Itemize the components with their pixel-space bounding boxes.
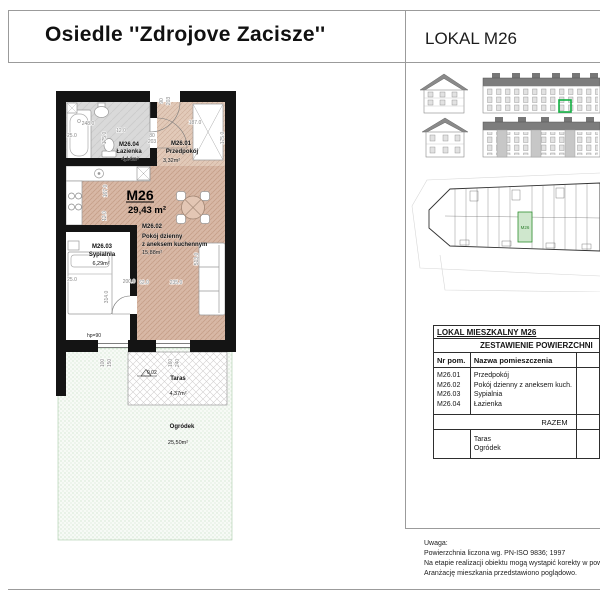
hall-area: 3,32m² [163,158,180,164]
bath-area: 4,14m² [121,157,138,163]
floor-plan-drawing: M26.04 Łazienka 4,14m² M26.01 Przedpokój… [40,85,250,545]
bed-area: 6,29m² [92,261,109,267]
notes-block: Uwaga: Powierzchnia liczona wg. PN-ISO 9… [424,539,600,579]
dim-window-w: 100 [100,359,106,368]
elevation-side-1 [420,74,468,113]
elevation-rear [483,117,600,157]
room-nr-2: M26.02 [437,381,467,391]
room-name-4: Łazienka [474,400,573,410]
living-id: M26.02 [142,224,163,230]
dim-hall-1: 187.0 [189,120,202,126]
area-table: LOKAL MIESZKALNY M26 ZESTAWIENIE POWIERZ… [433,325,600,459]
dim-kitchen-1: 167.0 [103,185,109,198]
extra-name-1: Taras [474,435,573,445]
building-elevations [408,64,600,160]
room-name-3: Sypialnia [474,390,573,400]
dim-bath-3: 175.0 [102,132,108,145]
hall-name: Przedpokój [166,149,199,155]
bed-id: M26.03 [92,244,113,250]
dim-hall-2: 175.0 [220,132,226,145]
room-numbers: M26.01 M26.02 M26.03 M26.04 [434,368,471,415]
col-header-nr: Nr pom. [434,353,471,368]
dim-bed-3: 25.0 [67,277,77,283]
terrace-area-label: 4,37m² [169,391,186,397]
room-nr-1: M26.01 [437,371,467,381]
dim-window-h: 150 [107,359,113,368]
dim-bath-2: 248.0 [82,121,95,127]
garden-name: Ogródek [170,424,195,430]
hall-id: M26.01 [171,141,192,147]
living-area: 15,88m² [142,250,162,256]
estate-title: Osiedle ''Zdrojove Zacisze'' [45,23,325,47]
room-name-1: Przedpokój [474,371,573,381]
building-footprint: M26 [429,183,600,251]
extra-nr-cell [434,430,471,459]
unit-total-area: 29,43 m² [128,205,166,216]
extra-areas [576,430,599,459]
notes-line-2: Powierzchnia liczona wg. PN-ISO 9836; 19… [424,549,600,559]
elevation-side-2 [422,118,468,157]
extra-name-2: Ogródek [474,444,573,454]
header-top-line [8,10,600,11]
col-header-name: Nazwa pomieszczenia [470,353,576,368]
elevation-front [483,73,600,113]
dim-living-1: 62.0 [139,280,149,286]
washing-machine [67,103,77,113]
dim-living-2: 235.0 [170,280,183,286]
bed-name: Sypialnia [89,252,116,258]
terrace-name: Taras [170,376,186,382]
unit-label: LOKAL M26 [425,29,517,49]
table-title: LOKAL MIESZKALNY M26 [434,326,600,339]
bath-id: M26.04 [119,142,140,148]
living-name-1: Pokój dzienny [142,234,183,240]
notes-line-1: Uwaga: [424,539,600,549]
living-name-2: z aneksem kuchennym [142,242,207,248]
sum-row-value [576,415,599,430]
sum-row-label: RAZEM [434,415,577,430]
room-name-2: Pokój dzienny z aneksem kuch. [474,381,573,391]
plan-sheet: Osiedle ''Zdrojove Zacisze'' LOKAL M26 [0,0,600,600]
table-subtitle: ZESTAWIENIE POWIERZCHNI [434,339,600,353]
sofa [199,243,225,315]
dim-living-3: 513.0 [194,253,200,266]
site-unit-label: M26 [521,225,530,230]
room-names: Przedpokój Pokój dzienny z aneksem kuch.… [470,368,576,415]
dim-bed-1: 200.0 [123,279,136,285]
dim-bathdoor-h: 203 [148,139,157,145]
notes-line-4: Aranżację mieszkania przedstawiono poglą… [424,569,600,579]
bath-name: Łazienka [116,149,142,155]
level-label: 0,02 [147,370,157,376]
dim-terracedoor-h: 240 [175,359,181,368]
dim-kitchen-2: 12.0 [102,211,108,221]
dim-bed-2: 314.0 [104,291,110,304]
sheet-bottom-line [8,589,600,590]
notes-top-line [405,528,600,529]
garden-area-label: 25,50m² [168,440,188,446]
site-plan: M26 [408,162,600,292]
header-bottom-line [8,62,600,63]
room-areas [576,368,599,415]
dim-entry-h: 203 [166,97,172,106]
col-header-area [576,353,599,368]
extra-names: Taras Ogródek [470,430,576,459]
unit-id: M26 [126,187,153,203]
dining-table [177,192,210,224]
sill-label: hp=90 [87,333,101,339]
dim-bath-1: 25.0 [67,133,77,139]
dim-bath-4: 12.0 [116,128,126,134]
dim-terracedoor-w: 160 [168,359,174,368]
dim-entry-w: 90 [159,98,165,104]
panel-divider-line [405,10,406,528]
room-nr-4: M26.04 [437,400,467,410]
notes-line-3: Na etapie realizacji obiektu mogą wystąp… [424,559,600,569]
room-nr-3: M26.03 [437,390,467,400]
header-left-line [8,10,9,62]
